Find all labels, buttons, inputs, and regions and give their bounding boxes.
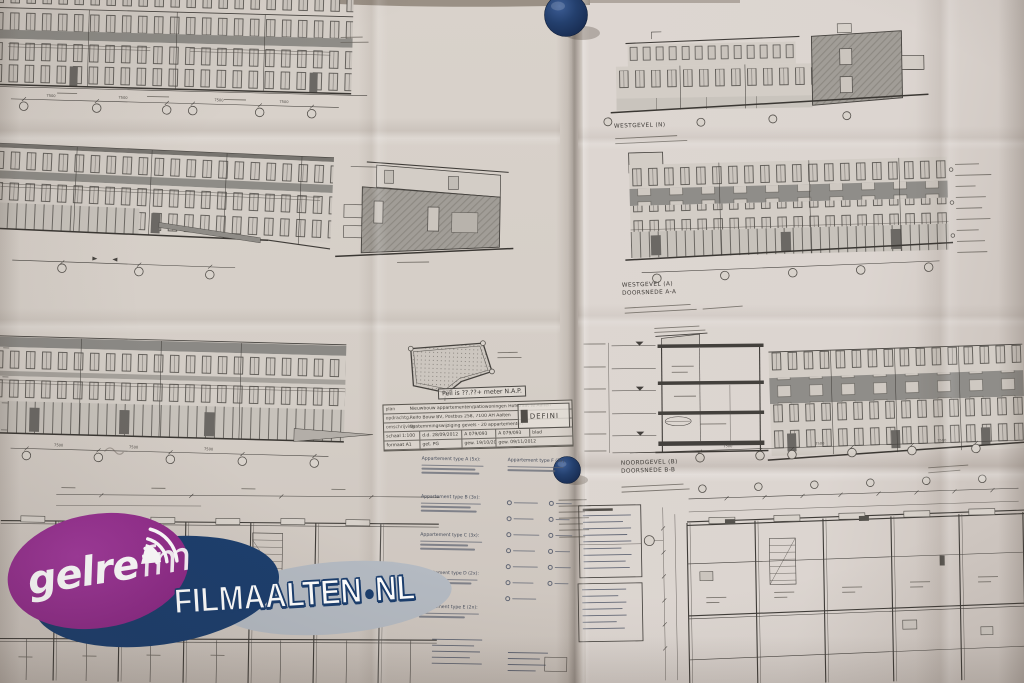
dimension-label: 7500 [723, 444, 733, 448]
stamp-logo-icon [521, 410, 528, 423]
legend-symbol [506, 532, 539, 538]
legend-symbol [548, 549, 570, 554]
legend-item-label: Appartement type B (3x): [421, 495, 501, 502]
symbol-circle-icon [505, 596, 510, 601]
elevation-title: WESTGEVEL (N) [614, 122, 666, 129]
symbol-circle-icon [507, 516, 512, 521]
legend-symbol [505, 596, 536, 602]
symbol-circle-icon [548, 533, 553, 538]
title-block: plan Nieuwbouw appartementen/patiowoning… [382, 400, 573, 452]
symbol-circle-icon [548, 565, 553, 570]
meta-cell: blad [530, 428, 572, 437]
legend-symbol [549, 517, 570, 522]
legend-item-label: Appartement type A (5x): [422, 457, 502, 464]
legend-symbol [507, 500, 538, 506]
dimension-label: 7500 [815, 442, 825, 446]
photo-of-blueprints: 7500 7500 7500 7500 [0, 0, 1024, 683]
symbol-circle-icon [505, 580, 510, 585]
symbol-circle-icon [548, 549, 553, 554]
label-westgevel-top: WESTGEVEL (N) [614, 122, 666, 131]
label-noordgevel: NOORDGEVEL (B) DOORSNEDE B-B [621, 459, 678, 476]
definitief-stamp: DEFINI [517, 403, 570, 429]
symbol-circle-icon [506, 564, 511, 569]
dimension-label: 7500 [54, 443, 64, 447]
dimension-label: 7500 [118, 96, 128, 100]
legend-symbol [507, 516, 534, 521]
meta-cell: gew. 19/10/2012 [462, 439, 496, 448]
dimension-label: 7500 [279, 100, 289, 104]
legend-symbol [547, 581, 568, 586]
title-block-label: plan [383, 406, 409, 412]
legend-symbol [548, 565, 571, 570]
section-title: DOORSNEDE B-B [621, 467, 678, 476]
site-dot-icon [365, 589, 374, 600]
meta-cell: schaal 1:100 [384, 432, 420, 441]
station-suffix-text: fm [136, 533, 194, 586]
dimension-label: 7500 [46, 94, 56, 98]
label-westgevel-mid: WESTGEVEL (A) DOORSNEDE A-A [622, 281, 677, 298]
title-block-label: omschrijving [384, 424, 410, 430]
legend-symbol [505, 580, 533, 585]
legend-item: Appartement type F (2x): [507, 458, 573, 472]
symbol-circle-icon [549, 501, 554, 506]
meta-cell: d.d. 28/09/2012 [420, 430, 462, 439]
legend-item: Appartement type B (3x): [421, 495, 501, 513]
dimension-label: 7500 [937, 438, 947, 442]
section-title: DOORSNEDE A-A [622, 289, 676, 298]
dimension-label: 7500 [129, 445, 139, 449]
meta-cell: A 079/093 [462, 430, 496, 439]
meta-cell: formaat A1 [384, 441, 420, 450]
symbol-circle-icon [507, 500, 512, 505]
symbol-circle-icon [547, 581, 552, 586]
meta-cell: gew. 09/11/2012 [496, 437, 572, 447]
legend-symbol [549, 501, 572, 506]
legend-symbol [548, 533, 572, 538]
watermark-logo: gelrefm FILMAALTENNL [5, 512, 450, 664]
dimension-label: 7500 [204, 447, 214, 451]
stamp-text: DEFINI [530, 411, 559, 420]
title-block-label: opdrachtg. [384, 415, 410, 421]
meta-cell: A 079/093 [496, 429, 530, 438]
legend-symbol [506, 548, 535, 554]
symbol-circle-icon [506, 532, 511, 537]
site-tld-text: NL [374, 567, 416, 609]
legend-item-label: Appartement type F (2x): [508, 458, 574, 464]
symbol-circle-icon [549, 517, 554, 522]
legend-symbol [506, 564, 538, 570]
meta-cell: get. PG [420, 439, 462, 448]
symbol-circle-icon [506, 548, 511, 553]
legend-item: Appartement type A (5x): [421, 457, 501, 475]
elevation-north-right [764, 344, 1024, 460]
dimension-label: 7500 [214, 98, 224, 102]
